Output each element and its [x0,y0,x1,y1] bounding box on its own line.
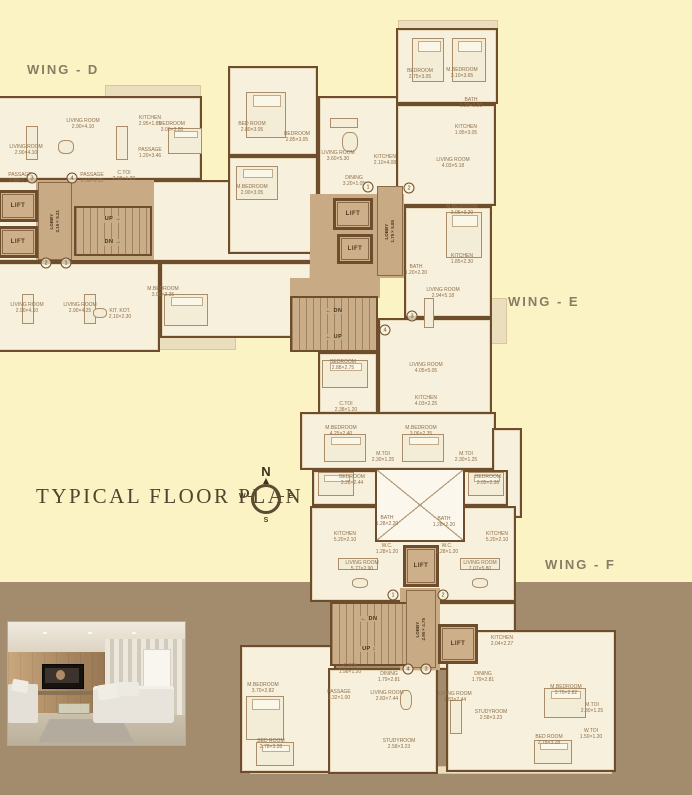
furniture-sofa [450,700,462,734]
stair-direction-label: ← DN [324,308,345,315]
bed-pillow [330,363,363,371]
compass-rose-icon: N W E S [238,464,294,526]
wing-e-label: WING - E [508,294,580,309]
furniture-bed [236,166,278,200]
stair-direction-label: UP ↓ [360,646,378,653]
core-zone [290,278,380,298]
unit-number: 1 [61,258,72,269]
bed-pillow [551,691,581,699]
unit-number: 4 [403,664,414,675]
unit-number: 3 [421,664,432,675]
lift-label: LIFT [348,246,363,252]
stair-direction-label: DN → [103,239,124,246]
furniture-bed [468,472,504,496]
furniture-bed [246,92,286,138]
lobby: LOBBY 2.90×4.75 [406,590,436,668]
bed-pillow [171,297,202,306]
bed-pillow [243,169,273,178]
lobby: LOBBY 1.75×5.85 [377,186,403,276]
furniture-bed [318,472,354,496]
furniture-bed [402,434,444,462]
bed-pillow [458,41,482,52]
wing-f-label: WING - F [545,557,616,572]
lift: LIFT [333,198,373,230]
furniture-bed [246,696,284,740]
lift-label: LIFT [346,211,361,217]
furniture-table [400,690,412,710]
photo-coffee-table [58,703,90,714]
room-block [378,318,492,414]
stair-direction-label: UP → [103,216,124,223]
compass-south: S [264,517,269,524]
furniture-sofa [116,126,128,160]
furniture-bed [412,38,444,82]
staircase: UP →DN → [74,206,152,256]
furniture-sofa [424,298,434,328]
furniture-sofa [26,126,38,160]
furniture-bed [322,360,368,388]
bed-pillow [262,745,289,752]
stair-direction-label: ← DN [359,616,380,623]
service-void [375,468,465,542]
furniture-bed [544,688,586,718]
compass-north: N [261,464,270,479]
unit-number: 2 [41,258,52,269]
furniture-sofa [330,118,358,128]
lift-label: LIFT [11,203,26,209]
photo-tv-picture [56,670,65,680]
interior-render-photo [8,622,185,745]
bed-pillow [418,41,441,52]
compass-circle-icon [251,484,281,514]
lift: LIFT [403,545,439,587]
bed-pillow [540,743,567,750]
room-block [328,668,438,774]
bed-pillow [174,131,198,138]
photo-cushion [118,682,139,696]
lift: LIFT [438,624,478,664]
unit-number: 2 [404,183,415,194]
compass-tick-east [279,496,284,497]
furniture-bed [534,740,572,764]
furniture-bed [324,434,366,462]
furniture-bed [256,742,294,766]
unit-number: 4 [380,325,391,336]
lift-label: LIFT [414,563,429,569]
unit-number: 2 [438,590,449,601]
furniture-table [93,308,107,318]
furniture-table [58,140,74,154]
furniture-bed [164,294,208,326]
photo-spotlight [132,632,136,634]
wing-d-label: WING - D [27,62,99,77]
furniture-table [472,578,488,588]
compass-west: W [239,493,246,500]
lobby-label: LOBBY 2.15×5.21 [49,210,61,233]
furniture-table [352,578,368,588]
photo-cushion [97,682,120,700]
lift: LIFT [0,226,38,258]
terrace-shade [491,298,507,344]
lobby: LOBBY 2.15×5.21 [38,182,72,260]
furniture-bed [452,38,486,82]
bed-pillow [252,699,279,710]
photo-spotlight [88,632,92,634]
unit-number: 1 [363,182,374,193]
bed-pillow [324,475,350,482]
bed-pillow [253,95,282,107]
furniture-bed [168,128,202,154]
lift: LIFT [0,190,38,222]
compass-east: E [288,493,293,500]
furniture-sofa [460,558,500,570]
compass-tick-west [248,496,253,497]
furniture-table [342,132,358,152]
furniture-sofa [22,294,34,324]
lobby-label: LOBBY 1.75×5.85 [384,220,396,243]
furniture-bed [446,212,482,258]
lobby-label: LOBBY 2.90×4.75 [415,618,427,641]
bed-pillow [452,215,478,227]
lift-label: LIFT [11,239,26,245]
unit-number: 4 [67,173,78,184]
unit-number: 1 [388,590,399,601]
bed-pillow [409,437,439,445]
bed-pillow [474,475,500,482]
bed-pillow [331,437,361,445]
unit-number: 3 [407,311,418,322]
lift: LIFT [337,234,373,264]
furniture-sofa [338,558,378,570]
staircase: ← DN← UP [290,296,378,352]
stair-direction-label: ← UP [324,334,345,341]
unit-number: 3 [27,173,38,184]
photo-tv-shelf [29,691,96,695]
staircase: ← DNUP ↓ [330,602,408,666]
lift-label: LIFT [451,641,466,647]
floor-plan-page: UP →DN →← DN← UP← DNUP ↓LOBBY 2.15×5.21L… [0,0,692,795]
